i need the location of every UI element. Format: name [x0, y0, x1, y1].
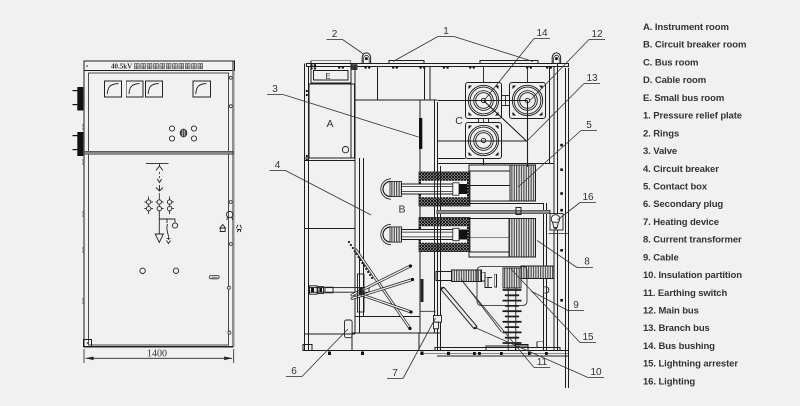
svg-text:14: 14 [536, 28, 548, 39]
svg-text:5: 5 [586, 120, 592, 131]
svg-text:E. Small bus room: E. Small bus room [643, 93, 724, 104]
svg-text:6. Secondary plug: 6. Secondary plug [643, 199, 723, 210]
svg-text:B. Circuit breaker room: B. Circuit breaker room [643, 40, 746, 51]
svg-text:9: 9 [573, 300, 579, 311]
svg-text:640: 640 [81, 211, 85, 217]
svg-text:15: 15 [582, 332, 594, 343]
svg-text:3: 3 [272, 84, 278, 95]
svg-text:2. Rings: 2. Rings [643, 128, 679, 139]
svg-text:12. Main bus: 12. Main bus [643, 306, 699, 317]
svg-text:1. Pressure relief plate: 1. Pressure relief plate [643, 111, 742, 122]
svg-text:4. Circuit breaker: 4. Circuit breaker [643, 164, 719, 175]
svg-text:C. Bus room: C. Bus room [643, 57, 698, 68]
svg-text:1400: 1400 [147, 348, 167, 359]
svg-text:C: C [455, 115, 463, 127]
svg-text:16. Lighting: 16. Lighting [643, 376, 695, 387]
svg-text:640: 640 [81, 124, 85, 130]
svg-text:A. Instrument room: A. Instrument room [643, 22, 729, 33]
svg-text:3. Valve: 3. Valve [643, 146, 677, 157]
svg-text:D: D [542, 285, 550, 297]
svg-text:13: 13 [586, 73, 598, 84]
svg-text:11: 11 [537, 357, 548, 368]
svg-text:16: 16 [582, 192, 594, 203]
svg-text:8: 8 [584, 257, 590, 268]
svg-text:1: 1 [443, 26, 449, 37]
svg-text:D. Cable room: D. Cable room [643, 75, 706, 86]
svg-text:12: 12 [591, 29, 603, 40]
svg-text:10. Insulation partition: 10. Insulation partition [643, 270, 742, 281]
svg-text:640: 640 [81, 298, 85, 304]
svg-text:6: 6 [291, 366, 297, 377]
svg-text:13. Branch bus: 13. Branch bus [643, 323, 710, 334]
svg-text:8. Current transformer: 8. Current transformer [643, 235, 742, 246]
svg-text:4: 4 [275, 160, 281, 171]
svg-text:5. Contact box: 5. Contact box [643, 181, 708, 192]
svg-text:7: 7 [392, 368, 398, 379]
svg-text:14. Bus bushing: 14. Bus bushing [643, 341, 715, 352]
svg-text:2: 2 [332, 29, 338, 40]
svg-text:7. Heating device: 7. Heating device [643, 217, 719, 228]
svg-text:640: 640 [81, 91, 85, 97]
svg-text:15. Lightning arrester: 15. Lightning arrester [643, 359, 738, 370]
svg-text:A: A [326, 118, 333, 130]
svg-text:E: E [325, 72, 330, 81]
svg-text:9. Cable: 9. Cable [643, 252, 679, 263]
svg-text:640: 640 [81, 159, 85, 165]
svg-text:10: 10 [590, 367, 602, 378]
svg-text:40.5kV: 40.5kV [111, 63, 132, 71]
svg-text:640: 640 [81, 247, 85, 253]
svg-text:B: B [398, 204, 405, 216]
svg-text:11. Earthing switch: 11. Earthing switch [643, 288, 727, 299]
